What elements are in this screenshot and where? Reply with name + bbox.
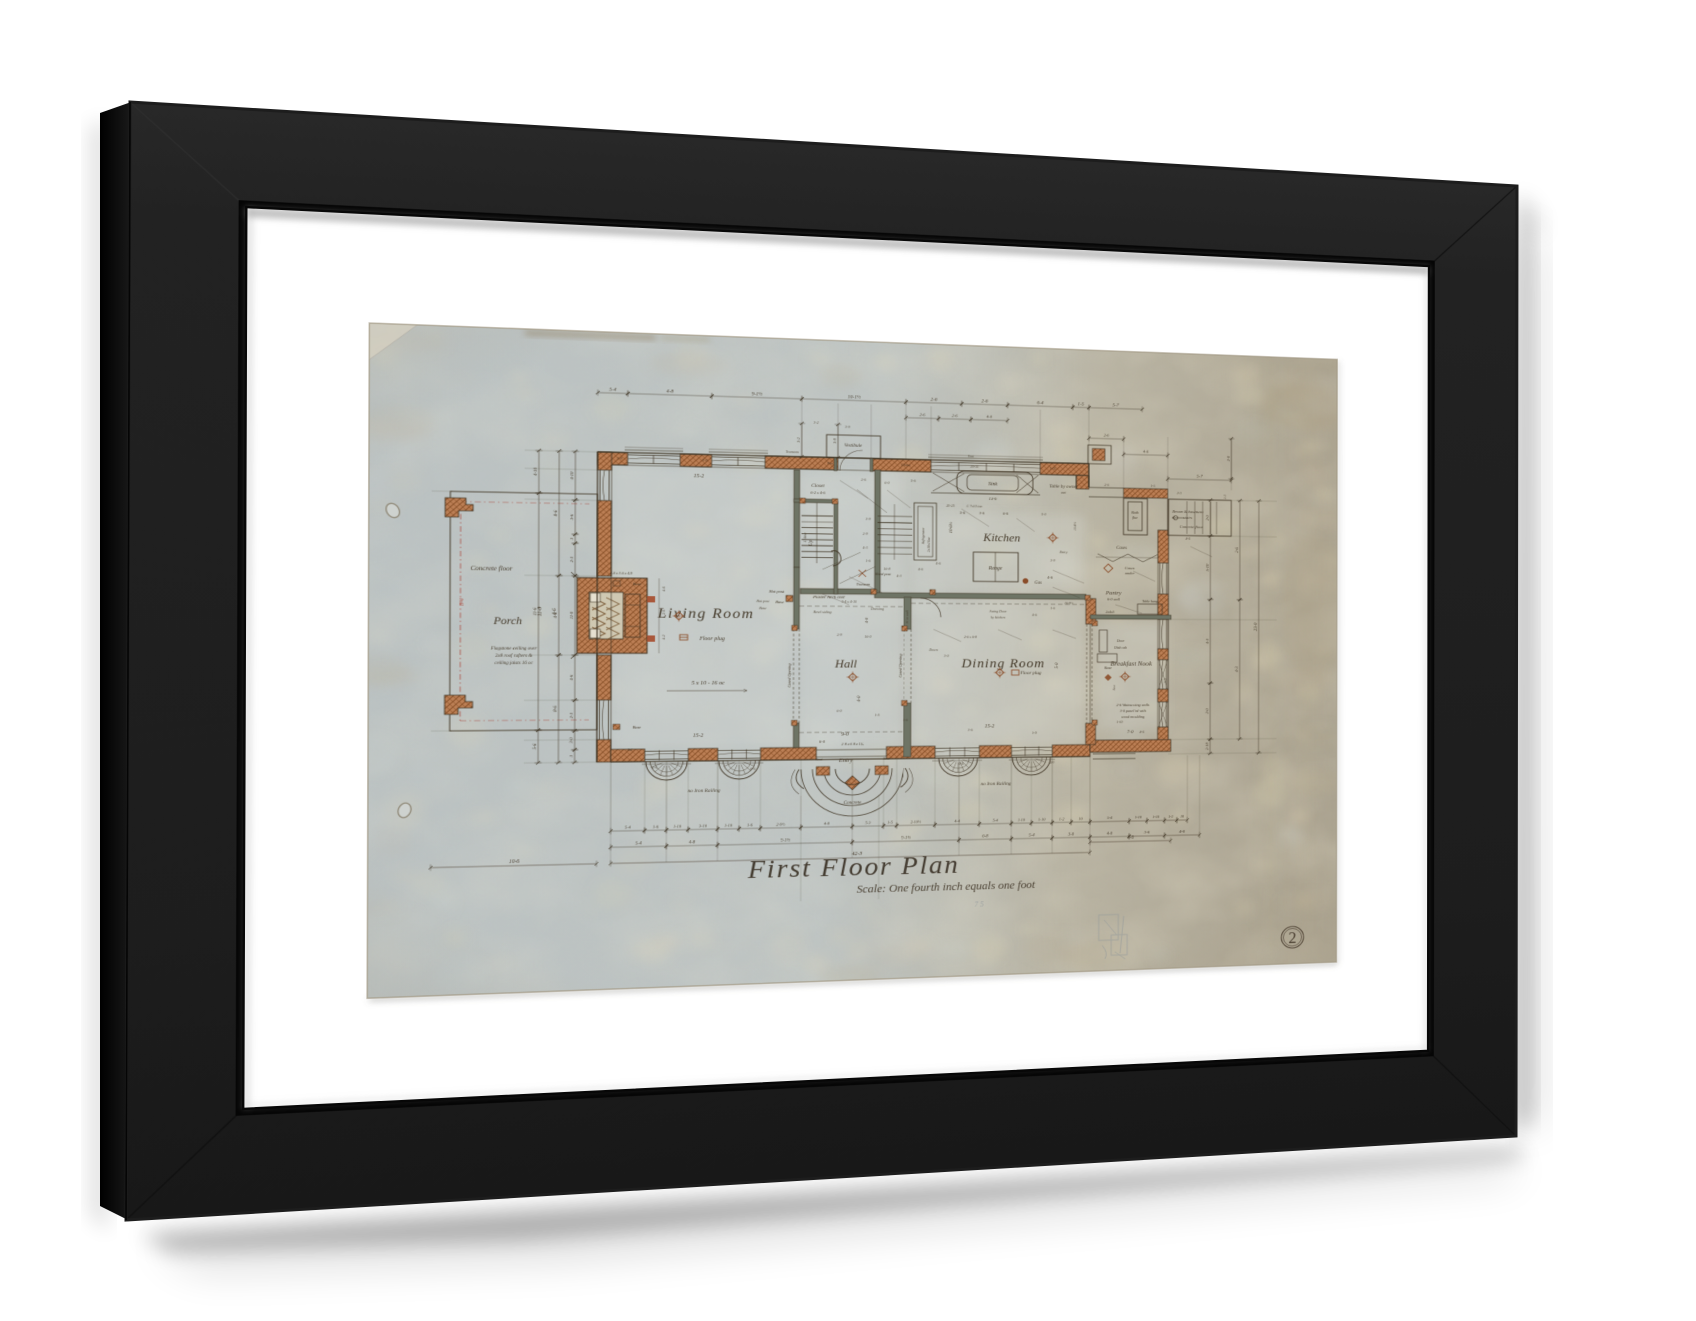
- svg-text:Entry: Entry: [838, 758, 853, 764]
- svg-text:11-0: 11-0: [570, 611, 575, 619]
- svg-text:Cases: Cases: [1125, 567, 1135, 571]
- svg-text:3-6: 3-6: [570, 514, 575, 520]
- svg-text:4-4: 4-4: [954, 819, 960, 823]
- svg-text:3-9: 3-9: [1050, 558, 1055, 562]
- svg-text:4-0: 4-0: [865, 617, 870, 623]
- svg-text:4-6: 4-6: [1143, 450, 1149, 454]
- svg-text:4-3: 4-3: [863, 546, 868, 550]
- svg-text:2-0 x 3-6 x 4-9: 2-0 x 3-6 x 4-9: [610, 571, 632, 576]
- svg-text:4-3: 4-3: [1206, 638, 1210, 644]
- svg-text:6-0: 6-0: [819, 740, 825, 744]
- svg-text:Bevel siding: Bevel siding: [813, 610, 831, 614]
- svg-text:2-9: 2-9: [863, 532, 868, 536]
- svg-text:5-7: 5-7: [1113, 403, 1120, 408]
- svg-text:2-0: 2-0: [1206, 515, 1210, 521]
- svg-text:6-8: 6-8: [982, 835, 988, 839]
- svg-text:2-10½: 2-10½: [910, 820, 921, 824]
- svg-text:5-4: 5-4: [625, 825, 632, 829]
- svg-text:no Iron Railing: no Iron Railing: [981, 782, 1011, 787]
- svg-text:4-3: 4-3: [1234, 666, 1240, 672]
- svg-text:6-0: 6-0: [837, 709, 842, 713]
- svg-text:17 Rise: 17 Rise: [803, 532, 808, 542]
- svg-text:3-6: 3-6: [979, 511, 985, 515]
- svg-text:Table hung: Table hung: [1142, 599, 1158, 603]
- svg-text:Flagstone ceiling over: Flagstone ceiling over: [490, 646, 538, 651]
- svg-text:Porch: Porch: [493, 614, 522, 626]
- svg-text:16-8: 16-8: [883, 567, 890, 571]
- svg-text:30 in wall: 30 in wall: [905, 610, 910, 624]
- svg-text:4-0: 4-0: [986, 415, 992, 419]
- svg-text:2-6 Wainscoting walls: 2-6 Wainscoting walls: [1116, 703, 1149, 707]
- svg-text:flue: flue: [1132, 515, 1138, 519]
- svg-text:9-1½: 9-1½: [752, 391, 764, 397]
- svg-text:3-6: 3-6: [1144, 831, 1150, 835]
- svg-text:Seat: Seat: [883, 756, 891, 760]
- svg-text:Base: Base: [759, 606, 766, 610]
- svg-text:Dairy: Dairy: [1059, 550, 1068, 554]
- svg-text:5-4: 5-4: [1107, 816, 1113, 820]
- svg-text:Transom: Transom: [786, 450, 799, 455]
- svg-text:Living Room: Living Room: [657, 605, 755, 622]
- svg-text:1-5: 1-5: [1150, 484, 1155, 488]
- svg-text:5-6: 5-6: [532, 743, 538, 749]
- svg-text:16-9½: 16-9½: [1064, 601, 1073, 605]
- svg-text:3-0: 3-0: [1068, 833, 1074, 837]
- svg-text:4-10: 4-10: [532, 467, 539, 476]
- svg-text:Floor plug: Floor plug: [699, 636, 725, 642]
- svg-text:2-3: 2-3: [570, 712, 575, 718]
- svg-text:Floor plug: Floor plug: [1019, 671, 1041, 676]
- svg-text:7-0: 7-0: [1127, 730, 1134, 735]
- svg-text:23-0: 23-0: [1254, 623, 1259, 631]
- svg-text:Hard post: Hard post: [874, 572, 891, 576]
- svg-text:1-10: 1-10: [724, 823, 733, 827]
- svg-text:C 7x10 ton: C 7x10 ton: [967, 504, 983, 508]
- svg-text:3-9: 3-9: [845, 425, 850, 429]
- svg-text:1-6: 1-6: [747, 823, 753, 827]
- svg-text:Sink: Sink: [988, 482, 997, 487]
- svg-text:Gas: Gas: [1035, 580, 1042, 585]
- svg-text:5-0: 5-0: [1041, 512, 1046, 516]
- svg-text:6-0: 6-0: [885, 481, 890, 485]
- svg-text:3-0 panelled with: 3-0 panelled with: [1120, 709, 1146, 713]
- svg-text:10-6: 10-6: [509, 860, 520, 865]
- svg-text:6-2 x 4-6: 6-2 x 4-6: [811, 490, 826, 494]
- svg-text:4-8: 4-8: [689, 841, 696, 845]
- svg-text:Swing Door: Swing Door: [989, 609, 1006, 613]
- svg-text:6-0 wall: 6-0 wall: [1107, 597, 1120, 601]
- svg-text:13-6: 13-6: [989, 497, 997, 501]
- svg-text:Pan: Pan: [826, 461, 833, 465]
- svg-text:Door: Door: [1116, 639, 1125, 643]
- svg-text:China: China: [901, 463, 910, 467]
- svg-text:4½: 4½: [1050, 760, 1054, 764]
- svg-text:8-4: 8-4: [459, 598, 466, 605]
- svg-text:15-2: 15-2: [694, 474, 704, 479]
- svg-text:4-3: 4-3: [897, 574, 902, 578]
- svg-text:3-4 x 4-10: 3-4 x 4-10: [841, 599, 856, 603]
- svg-text:by kitchen: by kitchen: [991, 615, 1005, 619]
- svg-text:2-6: 2-6: [1235, 547, 1240, 553]
- svg-text:15-2: 15-2: [693, 734, 703, 739]
- svg-text:2-9: 2-9: [837, 633, 842, 637]
- svg-text:2-6 x 6-8: 2-6 x 6-8: [964, 635, 977, 639]
- svg-text:2-6: 2-6: [919, 413, 925, 417]
- svg-text:3-9: 3-9: [832, 438, 837, 444]
- svg-text:2-6: 2-6: [952, 414, 958, 418]
- svg-text:10-6½: 10-6½: [1073, 522, 1077, 531]
- svg-text:ceiling joists 16 oc: ceiling joists 16 oc: [495, 661, 534, 666]
- svg-text:1-10: 1-10: [1116, 720, 1122, 724]
- svg-text:Base: Base: [633, 725, 642, 729]
- svg-text:Down: Down: [928, 648, 938, 652]
- svg-text:2: 2: [1288, 930, 1296, 948]
- svg-text:1-10: 1-10: [1152, 815, 1159, 819]
- svg-text:10-6½: 10-6½: [948, 522, 954, 533]
- svg-text:9-1½: 9-1½: [781, 839, 791, 843]
- svg-text:9-0: 9-0: [841, 732, 848, 737]
- svg-text:6-6: 6-6: [652, 765, 657, 769]
- svg-text:Base: Base: [633, 582, 642, 586]
- svg-text:4-0: 4-0: [1179, 831, 1185, 835]
- svg-text:2-3: 2-3: [570, 556, 575, 562]
- svg-text:4-8: 4-8: [824, 821, 830, 825]
- svg-text:10: 10: [1079, 817, 1084, 821]
- svg-text:4-0: 4-0: [1107, 832, 1113, 836]
- svg-text:20-25: 20-25: [946, 504, 954, 508]
- svg-text:5-4: 5-4: [635, 842, 642, 846]
- svg-text:1-6: 1-6: [1050, 606, 1055, 610]
- svg-text:2-0: 2-0: [1206, 708, 1210, 714]
- svg-text:3-9: 3-9: [866, 517, 871, 521]
- svg-text:8-6: 8-6: [553, 705, 559, 711]
- svg-text:5-6: 5-6: [960, 511, 966, 515]
- svg-text:Hall: Hall: [834, 657, 857, 670]
- svg-text:20-35: 20-35: [970, 464, 978, 468]
- svg-text:Concrete floor: Concrete floor: [1180, 526, 1203, 530]
- svg-text:2-6: 2-6: [1104, 433, 1110, 437]
- svg-text:5-8: 5-8: [617, 456, 622, 460]
- svg-text:2-6: 2-6: [981, 399, 988, 404]
- svg-text:Range: Range: [988, 566, 1003, 571]
- svg-text:1-6: 1-6: [653, 825, 659, 829]
- svg-text:Dish cab: Dish cab: [1113, 645, 1127, 649]
- svg-text:4-6: 4-6: [552, 612, 559, 618]
- svg-text:1-35: 1-35: [1050, 466, 1056, 470]
- svg-text:Cased Opening: Cased Opening: [787, 663, 792, 688]
- svg-text:6-6: 6-6: [1003, 511, 1009, 515]
- svg-text:3-2: 3-2: [814, 420, 819, 424]
- svg-text:wood moulding: wood moulding: [1121, 715, 1145, 719]
- svg-text:Broom & basement: Broom & basement: [1172, 510, 1204, 515]
- svg-text:5-6: 5-6: [911, 479, 916, 483]
- svg-text:2x4x5: 2x4x5: [1106, 610, 1114, 614]
- svg-text:1-5: 1-5: [875, 713, 880, 717]
- svg-text:4-6: 4-6: [936, 561, 941, 565]
- svg-text:Table by owner: Table by owner: [1049, 484, 1078, 490]
- svg-text:4-6: 4-6: [570, 674, 575, 680]
- svg-text:Drawing: Drawing: [870, 607, 884, 611]
- svg-text:5-7: 5-7: [1197, 474, 1203, 479]
- svg-text:16-0: 16-0: [864, 635, 871, 639]
- svg-text:4-10: 4-10: [570, 471, 575, 479]
- svg-text:First Floor Plan: First Floor Plan: [747, 850, 960, 884]
- svg-text:Seat: Seat: [1112, 684, 1116, 690]
- svg-text:Kitchen: Kitchen: [982, 531, 1020, 544]
- svg-text:1-5: 1-5: [887, 820, 893, 824]
- svg-text:Concrete floor: Concrete floor: [470, 564, 512, 572]
- svg-text:4-6: 4-6: [661, 586, 666, 592]
- svg-text:5 x 10 - 16 oc: 5 x 10 - 16 oc: [691, 680, 724, 686]
- svg-text:1-10: 1-10: [1018, 818, 1026, 822]
- svg-text:2-3: 2-3: [1223, 495, 1227, 499]
- svg-text:2-8 x 6-8 x 1¾: 2-8 x 6-8 x 1¾: [842, 742, 864, 746]
- svg-text:Vent: Vent: [968, 454, 975, 458]
- svg-text:2-9½: 2-9½: [776, 822, 785, 826]
- svg-text:stairs: stairs: [1183, 516, 1192, 520]
- svg-text:net: net: [1061, 490, 1066, 494]
- svg-text:Base: Base: [775, 601, 784, 605]
- svg-text:1-6: 1-6: [866, 559, 871, 563]
- svg-text:5-4: 5-4: [609, 387, 616, 392]
- svg-text:1-10: 1-10: [673, 824, 682, 828]
- svg-text:1-5: 1-5: [1078, 402, 1085, 407]
- svg-text:6-6: 6-6: [959, 762, 964, 766]
- svg-text:1-10: 1-10: [1135, 816, 1143, 820]
- svg-text:5-4: 5-4: [993, 818, 999, 822]
- svg-text:1-2: 1-2: [1168, 815, 1174, 819]
- svg-text:2-10: 2-10: [1206, 742, 1210, 750]
- svg-text:Seat: Seat: [816, 757, 824, 761]
- svg-text:10-1½: 10-1½: [848, 394, 862, 400]
- svg-text:4-6: 4-6: [1139, 730, 1144, 734]
- svg-text:4-6: 4-6: [1047, 576, 1053, 580]
- svg-text:3-0: 3-0: [944, 654, 949, 658]
- svg-text:1-2: 1-2: [1059, 817, 1065, 821]
- svg-text:7 5: 7 5: [974, 901, 983, 909]
- svg-text:3-10: 3-10: [699, 824, 708, 828]
- svg-text:4-2: 4-2: [661, 635, 666, 640]
- svg-text:Bath: Bath: [1132, 510, 1139, 514]
- svg-text:6-4: 6-4: [1037, 401, 1044, 406]
- svg-text:2-0: 2-0: [1227, 456, 1231, 462]
- svg-text:3-0: 3-0: [702, 458, 707, 462]
- svg-text:2-6: 2-6: [861, 478, 866, 482]
- svg-text:2x8 roof rafters &: 2x8 roof rafters &: [495, 652, 533, 658]
- svg-text:3-6: 3-6: [968, 728, 973, 732]
- svg-text:under: under: [1125, 572, 1135, 576]
- svg-text:3-2: 3-2: [796, 437, 801, 443]
- svg-text:11-6: 11-6: [533, 607, 539, 615]
- svg-text:4-6: 4-6: [1032, 613, 1037, 617]
- svg-text:Refrigerator: Refrigerator: [921, 527, 926, 545]
- svg-text:2x10x16oc: 2x10x16oc: [926, 537, 930, 552]
- svg-text:Hat post: Hat post: [768, 590, 785, 594]
- svg-text:7-0: 7-0: [1127, 836, 1134, 841]
- svg-text:15-2: 15-2: [985, 724, 995, 729]
- svg-text:4-6: 4-6: [918, 567, 923, 571]
- svg-text:9-1½: 9-1½: [901, 836, 911, 840]
- svg-text:Cases: Cases: [1116, 546, 1127, 551]
- svg-text:3-0: 3-0: [570, 737, 575, 743]
- svg-text:1-10: 1-10: [1038, 817, 1046, 821]
- svg-text:4-6: 4-6: [1186, 537, 1191, 541]
- svg-text:Vestibule: Vestibule: [844, 443, 862, 448]
- svg-text:no Iron Railing: no Iron Railing: [688, 788, 721, 794]
- svg-text:4-8: 4-8: [666, 389, 673, 394]
- svg-text:Closet: Closet: [811, 483, 825, 488]
- svg-text:2-6: 2-6: [931, 397, 938, 402]
- svg-text:5-4: 5-4: [1029, 834, 1035, 838]
- svg-text:2-3: 2-3: [1177, 491, 1182, 495]
- svg-text:Pantry: Pantry: [1105, 590, 1122, 596]
- svg-text:5-3: 5-3: [865, 821, 871, 825]
- svg-text:2-6: 2-6: [1104, 483, 1109, 487]
- svg-text:8-6: 8-6: [553, 510, 559, 516]
- svg-text:Cased Opening: Cased Opening: [898, 653, 903, 677]
- svg-text:Concrete: Concrete: [843, 800, 861, 805]
- svg-text:1-9: 1-9: [1032, 731, 1037, 735]
- svg-text:5-10: 5-10: [1206, 564, 1210, 572]
- svg-text:3-0: 3-0: [1163, 679, 1167, 683]
- svg-text:5-0: 5-0: [1054, 662, 1059, 668]
- svg-text:Up: Up: [808, 540, 814, 546]
- svg-text:5-6: 5-6: [903, 718, 908, 722]
- svg-text:Dining Room: Dining Room: [961, 657, 1045, 671]
- svg-text:Breakfast Nook: Breakfast Nook: [1110, 660, 1152, 667]
- svg-text:Hat post: Hat post: [755, 599, 770, 603]
- svg-text:6-6: 6-6: [750, 767, 755, 771]
- svg-text:4-0: 4-0: [856, 696, 862, 702]
